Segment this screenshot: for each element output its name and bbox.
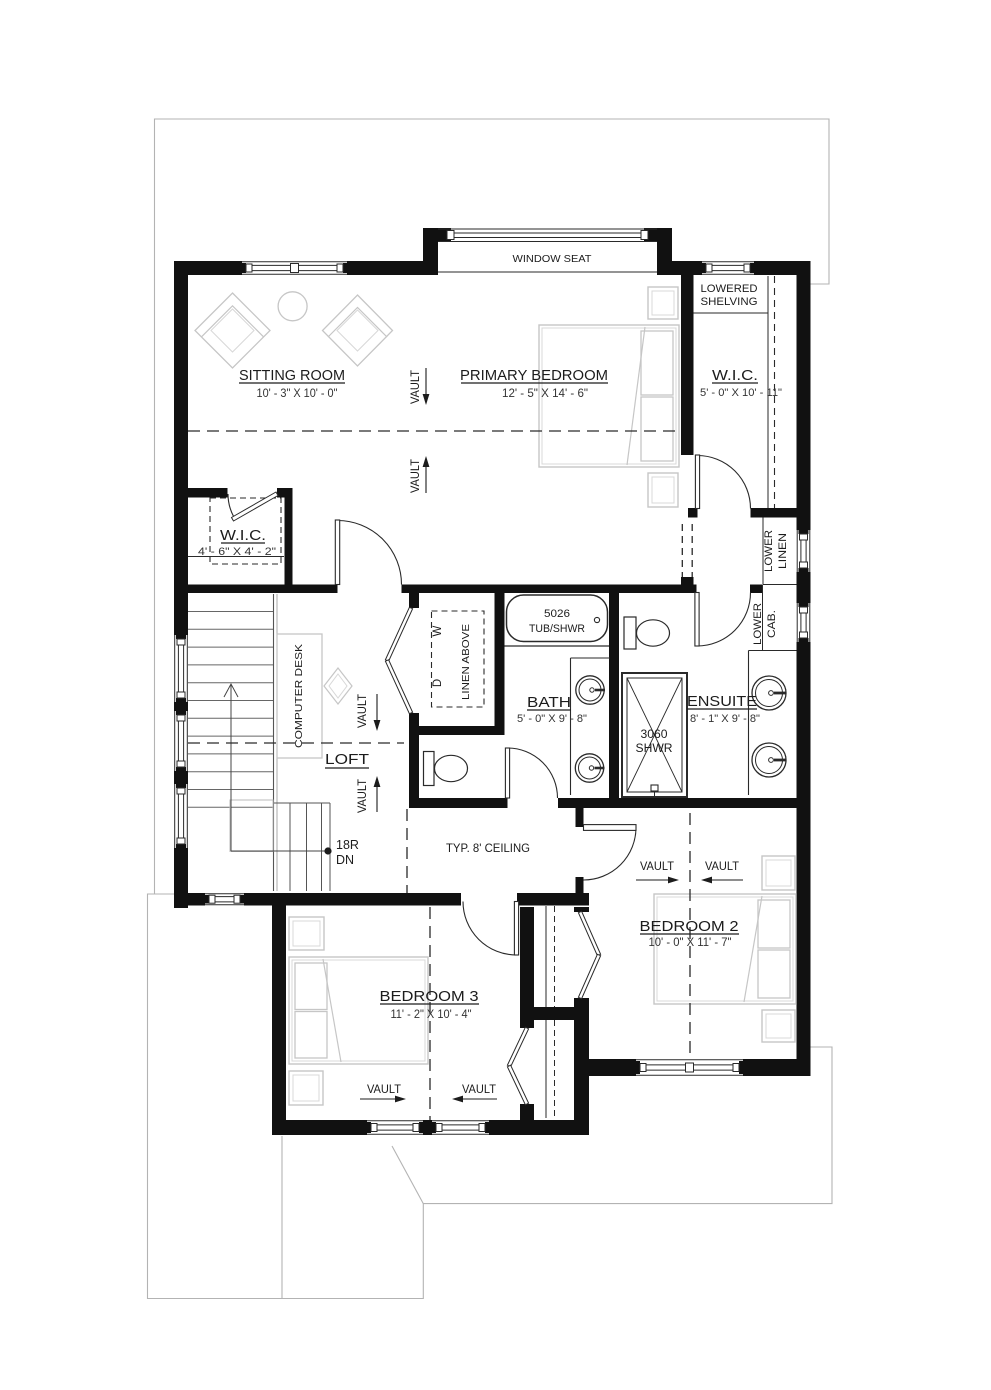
svg-text:DN: DN (336, 853, 354, 867)
svg-text:BEDROOM 2: BEDROOM 2 (640, 918, 739, 935)
svg-text:18R: 18R (336, 838, 359, 852)
svg-text:VAULT: VAULT (357, 694, 369, 728)
svg-text:5' - 0" X 10' - 11": 5' - 0" X 10' - 11" (700, 387, 782, 399)
svg-text:BATH: BATH (527, 695, 571, 711)
svg-text:TUB/SHWR: TUB/SHWR (529, 623, 585, 635)
svg-text:4' - 6" X 4' - 2": 4' - 6" X 4' - 2" (198, 546, 276, 558)
svg-text:10' - 0" X 11' - 7": 10' - 0" X 11' - 7" (649, 935, 732, 949)
svg-text:D: D (432, 679, 444, 687)
svg-text:WINDOW SEAT: WINDOW SEAT (513, 253, 593, 265)
svg-text:SHWR: SHWR (636, 743, 673, 755)
svg-text:LOWER: LOWER (752, 603, 764, 645)
svg-text:VAULT: VAULT (367, 1082, 402, 1096)
svg-text:8' - 1" X 9' - 8": 8' - 1" X 9' - 8" (690, 713, 760, 725)
svg-text:VAULT: VAULT (705, 859, 740, 873)
svg-text:PRIMARY BEDROOM: PRIMARY BEDROOM (460, 367, 608, 384)
svg-text:SHELVING: SHELVING (701, 296, 758, 308)
svg-text:COMPUTER DESK: COMPUTER DESK (293, 644, 305, 748)
svg-text:W: W (432, 625, 444, 636)
svg-text:LOWERED: LOWERED (701, 283, 758, 295)
svg-text:TYP. 8' CEILING: TYP. 8' CEILING (446, 843, 530, 855)
svg-text:VAULT: VAULT (357, 779, 369, 813)
svg-text:VAULT: VAULT (640, 859, 675, 873)
svg-text:5' - 0" X 9' - 8": 5' - 0" X 9' - 8" (517, 713, 587, 725)
svg-text:LOWER: LOWER (763, 530, 775, 572)
svg-text:BEDROOM 3: BEDROOM 3 (380, 988, 479, 1005)
svg-text:VAULT: VAULT (410, 459, 422, 493)
svg-text:VAULT: VAULT (410, 370, 422, 404)
svg-text:LINEN ABOVE: LINEN ABOVE (460, 624, 472, 700)
svg-text:3060: 3060 (641, 729, 668, 741)
svg-text:10' - 3" X 10' - 0": 10' - 3" X 10' - 0" (257, 386, 338, 400)
svg-text:W.I.C.: W.I.C. (712, 368, 758, 384)
svg-text:CAB.: CAB. (766, 610, 778, 638)
svg-text:LOFT: LOFT (325, 751, 369, 768)
svg-text:VAULT: VAULT (462, 1082, 497, 1096)
svg-text:SITTING ROOM: SITTING ROOM (239, 367, 345, 384)
svg-text:11' - 2" X 10' - 4": 11' - 2" X 10' - 4" (391, 1007, 472, 1021)
svg-text:W.I.C.: W.I.C. (220, 528, 266, 544)
svg-text:ENSUITE: ENSUITE (687, 694, 757, 710)
svg-text:5026: 5026 (544, 608, 570, 620)
svg-text:LINEN: LINEN (777, 533, 789, 569)
svg-text:12' - 5" X 14' - 6": 12' - 5" X 14' - 6" (502, 386, 588, 400)
